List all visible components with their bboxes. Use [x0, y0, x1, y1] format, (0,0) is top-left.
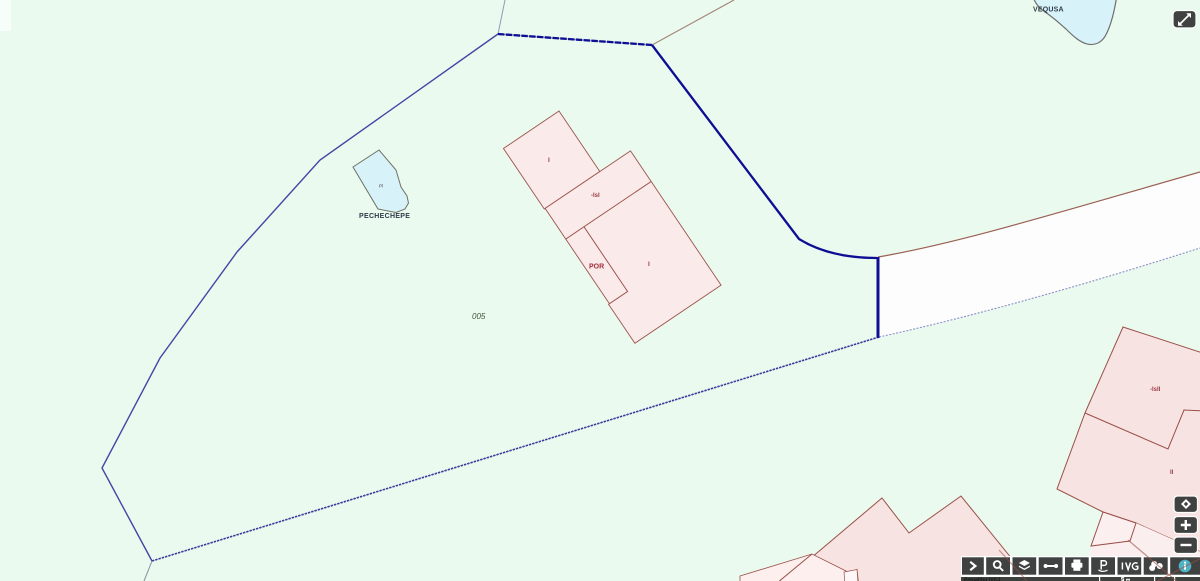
svg-text:I: I	[648, 261, 650, 268]
svg-text:I: I	[548, 157, 550, 164]
svg-text:PECHECHEPE: PECHECHEPE	[359, 213, 410, 220]
svg-text:II: II	[1170, 470, 1174, 476]
svg-text:Pl: Pl	[379, 184, 383, 189]
svg-text:-IsI: -IsI	[591, 193, 600, 199]
svg-text:POR: POR	[589, 264, 604, 271]
svg-text:-IsII: -IsII	[1150, 387, 1161, 393]
svg-text:Pergatitur IVGJ: Pergatitur IVGJ	[964, 578, 1001, 581]
svg-text:VEQUSA: VEQUSA	[1033, 7, 1064, 14]
svg-text:005: 005	[472, 312, 486, 321]
